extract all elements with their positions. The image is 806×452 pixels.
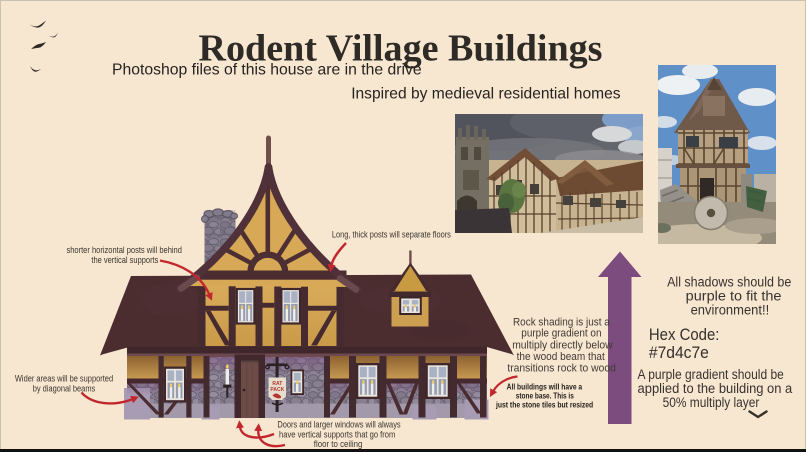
svg-text:environment!!: environment!!	[691, 303, 770, 318]
svg-text:purple to fit the: purple to fit the	[686, 289, 782, 304]
svg-text:the vertical supports: the vertical supports	[91, 255, 158, 265]
svg-text:the wood beam that: the wood beam that	[517, 351, 606, 363]
svg-text:multiply directly below: multiply directly below	[512, 339, 613, 351]
svg-text:purple gradient on: purple gradient on	[521, 327, 601, 339]
svg-text:Inspired by medieval residenti: Inspired by medieval residential homes	[351, 86, 621, 103]
svg-text:Doors and larger windows will: Doors and larger windows will always	[277, 420, 401, 430]
svg-text:Photoshop files of this house: Photoshop files of this house are in the…	[112, 62, 422, 79]
svg-text:floor to ceiling: floor to ceiling	[314, 439, 363, 449]
svg-text:#7d4c7e: #7d4c7e	[649, 344, 709, 362]
svg-text:Hex Code:: Hex Code:	[649, 326, 720, 344]
svg-text:All shadows should be: All shadows should be	[667, 275, 791, 290]
svg-text:transitions rock to wood: transitions rock to wood	[507, 363, 616, 375]
svg-text:just the stone tiles but resiz: just the stone tiles but resized	[495, 400, 593, 410]
svg-text:Long, thick posts will separat: Long, thick posts will separate floors	[332, 230, 451, 240]
svg-text:shorter horizontal posts will: shorter horizontal posts will behind	[66, 245, 182, 255]
svg-text:Wider areas will be supported: Wider areas will be supported	[15, 374, 113, 384]
svg-text:50% multiply layer: 50% multiply layer	[663, 395, 760, 410]
svg-text:applied to the building on a: applied to the building on a	[638, 381, 793, 396]
svg-text:PACK: PACK	[270, 387, 284, 393]
svg-text:have vertical supports that go: have vertical supports that go from	[279, 429, 395, 439]
svg-text:A purple gradient should be: A purple gradient should be	[638, 367, 784, 382]
svg-text:by diagonal beams: by diagonal beams	[33, 383, 96, 393]
